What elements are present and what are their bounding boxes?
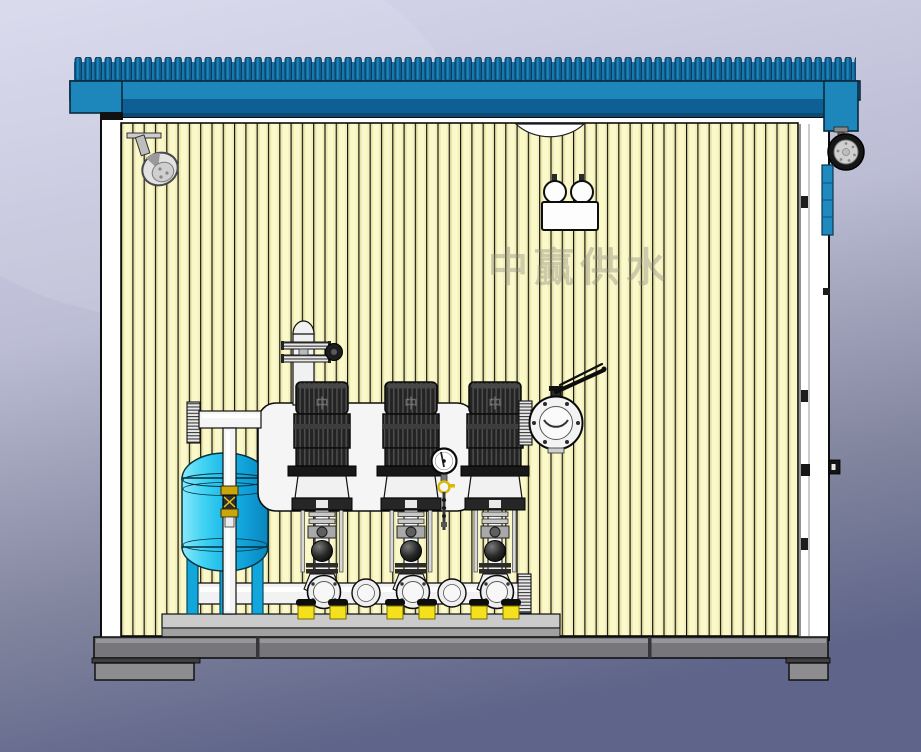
valve-flange-plate [283, 342, 329, 349]
valve-bolt [532, 421, 536, 425]
brass-valve-top [221, 486, 238, 495]
spotlight-led [165, 171, 168, 174]
roof-right-end-cap [824, 81, 858, 131]
lamp-bolt [852, 146, 855, 149]
discharge-pipe-left [199, 411, 261, 428]
door-latch [801, 464, 810, 476]
foot-plate-right [786, 658, 830, 663]
flange-bolt [281, 354, 284, 363]
emergency-lamp-right [571, 181, 593, 203]
gauge-hub [442, 459, 446, 463]
tube-bead [442, 498, 446, 502]
door-hinge [801, 538, 808, 550]
flange-bolt [281, 341, 284, 350]
render-canvas: 中 中赢供水 [0, 0, 921, 752]
valve-bottom-tab [548, 448, 564, 453]
foot-plate-left [92, 658, 200, 663]
tank-riser [221, 428, 238, 614]
door-hinge [801, 196, 808, 208]
tube-bead [442, 514, 446, 518]
skid-slab-top [162, 614, 560, 628]
tube-collar [441, 522, 447, 527]
tube-bead [442, 506, 446, 510]
valve-bolt [565, 402, 569, 406]
roof-fascia [70, 81, 860, 100]
side-louver-panel [822, 165, 833, 235]
roof-left-end-cap [70, 81, 122, 113]
roof-rib-band [74, 57, 856, 81]
lamp-bolt [853, 154, 856, 157]
foot-right [789, 663, 828, 680]
blind-flange-inner [358, 585, 375, 602]
spotlight-led [159, 175, 162, 178]
suction-end-flange-right [518, 574, 531, 613]
discharge-end-flange-left [187, 402, 200, 443]
spotlight-led [158, 167, 161, 170]
pipe-highlight [202, 414, 260, 418]
valve-bolt [565, 440, 569, 444]
lever-knob [602, 367, 607, 372]
roof-left-step [100, 112, 123, 120]
door-hinge [801, 390, 808, 402]
petcock-lever [448, 484, 455, 488]
lamp-center [843, 149, 850, 156]
watermark-text: 中赢供水 [488, 245, 672, 291]
enclosure-cabinet: 中赢供水 [101, 117, 830, 640]
lamp-bolt [837, 150, 840, 153]
handwheel-hub [331, 349, 337, 355]
lamp-bolt [840, 158, 843, 161]
blind-flange-inner [444, 585, 461, 602]
door-hinge [823, 288, 830, 295]
lamp-bolt [845, 142, 848, 145]
lamp-bracket [834, 127, 848, 132]
foot-left [95, 663, 194, 680]
base-beam-highlight [96, 639, 826, 643]
valve-bolt [543, 402, 547, 406]
valve-bolt [576, 421, 580, 425]
pump-station-render: 中 中赢供水 [0, 0, 921, 752]
door-handle-slot [832, 464, 836, 470]
equipment-skid-base [162, 614, 560, 637]
valve-flange-plate [283, 355, 329, 362]
valve-collar [225, 517, 234, 527]
skid-slab-shadow [162, 628, 560, 637]
brass-valve-bottom [221, 509, 238, 517]
emergency-lamp-left [544, 181, 566, 203]
emergency-light-box [542, 202, 598, 230]
valve-bolt [543, 440, 547, 444]
valve-stem [299, 349, 308, 355]
valve-bore [540, 407, 573, 440]
beam-joint [256, 637, 260, 658]
roof-eave-line [122, 113, 824, 117]
lamp-bolt [848, 159, 851, 162]
roof-shadow-band [100, 99, 824, 114]
door-handle-exterior [829, 460, 840, 474]
beam-joint [648, 637, 652, 658]
